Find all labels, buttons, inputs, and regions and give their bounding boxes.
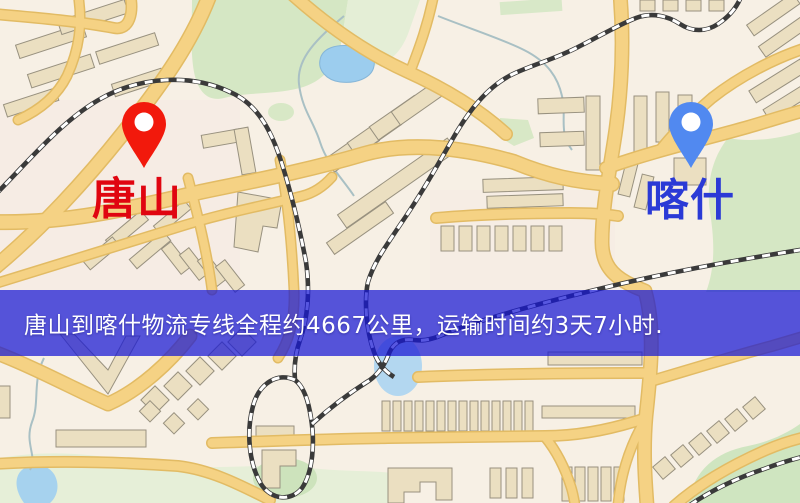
destination-pin-shape (669, 102, 713, 168)
map-canvas (0, 0, 800, 503)
route-info-banner: 唐山到喀什物流专线全程约4667公里，运输时间约3天7小时. (0, 290, 800, 356)
destination-pin-hole (682, 113, 701, 132)
destination-pin-icon (665, 98, 717, 172)
origin-pin-icon (118, 98, 170, 172)
destination-city-label: 喀什 (645, 179, 735, 223)
route-info-text: 唐山到喀什物流专线全程约4667公里，运输时间约3天7小时. (24, 306, 663, 340)
logistics-route-map: 唐山 喀什 唐山到喀什物流专线全程约4667公里，运输时间约3天7小时. (0, 0, 800, 503)
origin-pin-hole (135, 113, 154, 132)
origin-pin-shape (122, 102, 166, 168)
origin-city-label: 唐山 (92, 178, 182, 222)
